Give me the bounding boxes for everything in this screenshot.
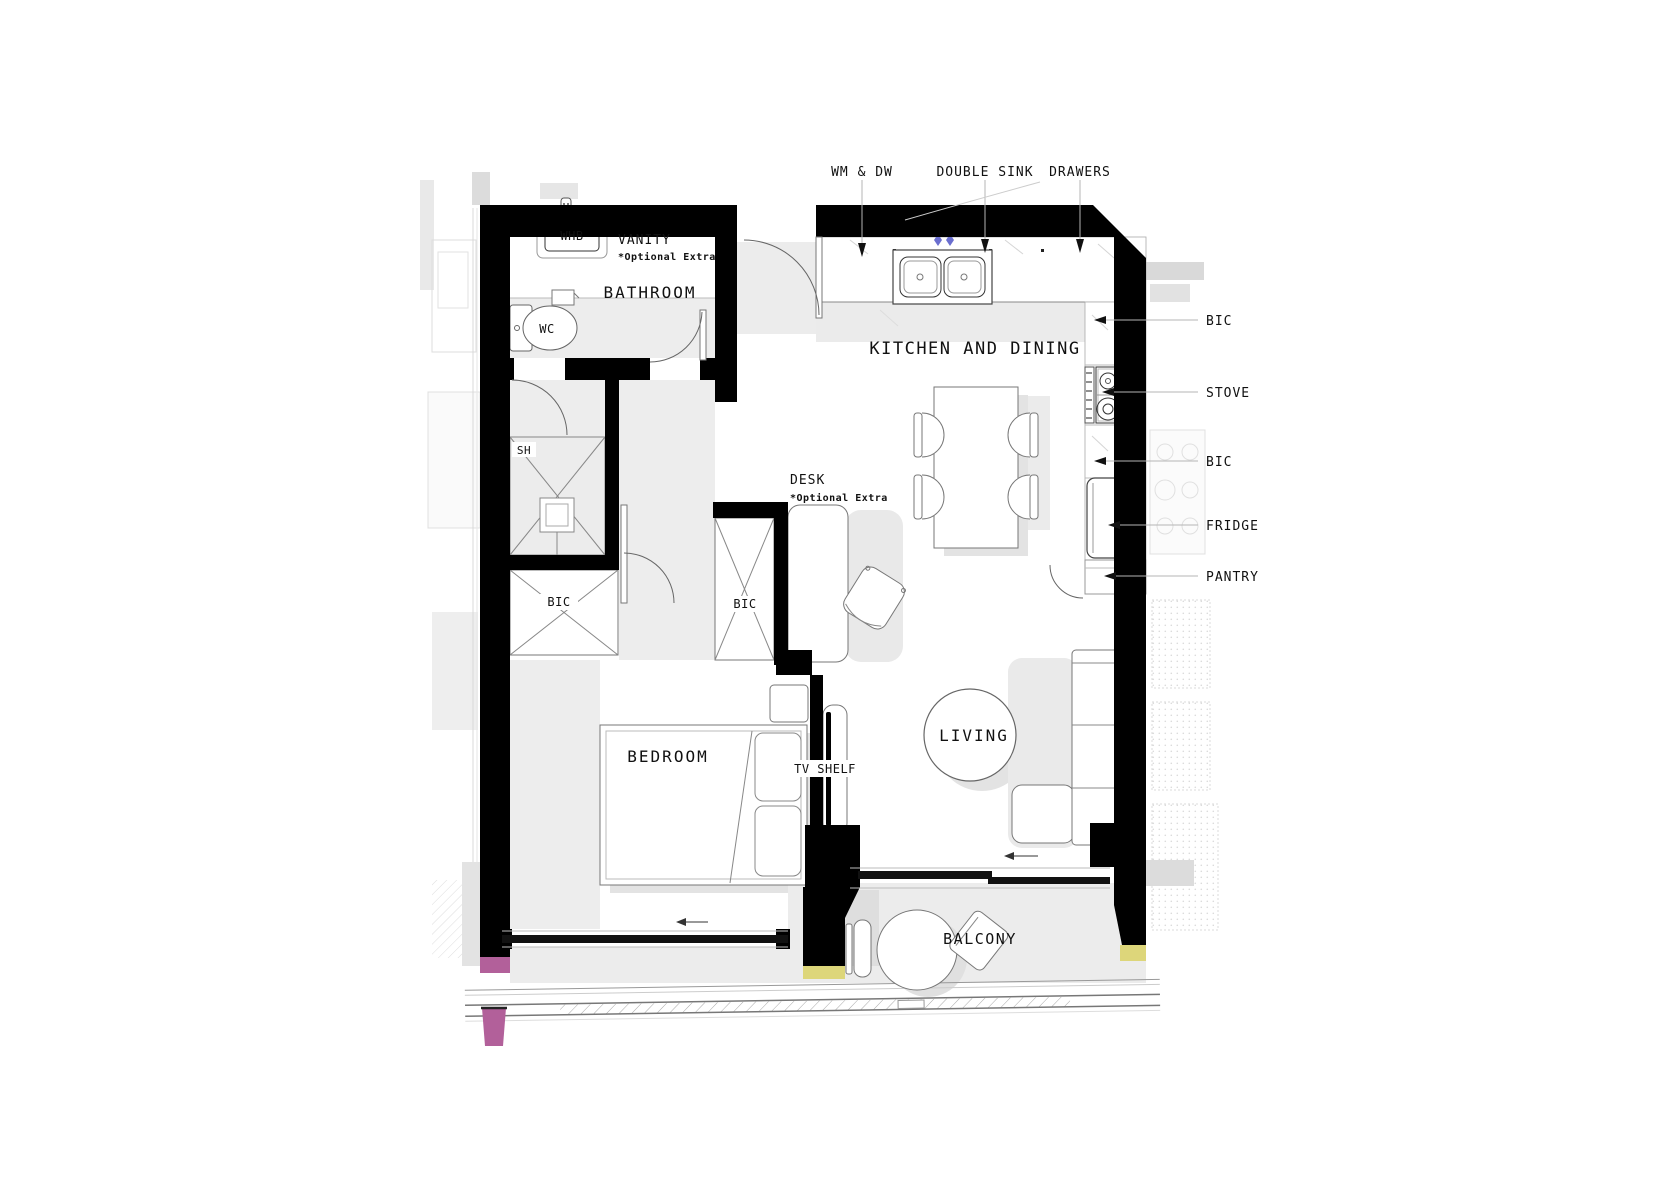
balcony-table xyxy=(877,910,957,990)
ghost-unit-right xyxy=(1152,702,1210,790)
wall-right-balcony-junction xyxy=(1090,823,1146,867)
ghost-unit-left xyxy=(428,392,480,528)
wall-wardrobe-right xyxy=(774,502,788,665)
wall-left xyxy=(480,205,510,957)
ghost-block xyxy=(540,183,578,199)
balcony-floor-left xyxy=(510,947,788,983)
fixture-whb: WHB xyxy=(560,229,583,243)
railing-column xyxy=(481,1008,507,1046)
fixture-bic-wardrobe: BIC xyxy=(733,597,756,611)
joint-dot xyxy=(1041,249,1044,252)
room-balcony: BALCONY xyxy=(943,930,1017,948)
callout-desk: DESK xyxy=(790,473,825,488)
callout-double-sink: DOUBLE SINK xyxy=(936,165,1033,180)
bic-wardrobe xyxy=(715,518,774,660)
wall-shadow xyxy=(462,862,480,966)
ghost-band-right xyxy=(1150,284,1190,302)
sofa-chaise xyxy=(1012,785,1074,843)
balcony-railing xyxy=(465,979,1160,1021)
chair-back xyxy=(914,413,922,457)
window-arrow xyxy=(676,918,708,926)
hall-floor-shade xyxy=(619,380,715,660)
pillow xyxy=(755,806,801,876)
wall-bathroom-bottom xyxy=(502,358,514,380)
wall-shower-right xyxy=(605,358,619,570)
room-bedroom: BEDROOM xyxy=(627,747,708,766)
desk xyxy=(788,505,848,662)
chair-back xyxy=(914,475,922,519)
counter-shade xyxy=(816,302,1085,342)
callout-stove: STOVE xyxy=(1206,386,1250,401)
wall-tv xyxy=(810,675,823,825)
fixture-wc: WC xyxy=(539,322,554,336)
ghost-unit-left xyxy=(438,252,468,308)
chair-seat xyxy=(854,920,871,977)
tap-dot xyxy=(567,203,569,205)
pink-column-cap-left xyxy=(480,957,510,973)
ghost-unit-left xyxy=(432,612,478,730)
sliding-door-panel xyxy=(988,877,1110,884)
stove-knobs xyxy=(1085,367,1094,423)
wall-top-bathroom xyxy=(480,205,737,237)
callout-drawers: DRAWERS xyxy=(1049,165,1111,180)
entry-floor-shade xyxy=(737,242,816,334)
toilet-roll-holder xyxy=(552,290,574,305)
callout-desk-note: *Optional Extra xyxy=(790,492,888,504)
fixture-tv-shelf: TV SHELF xyxy=(794,762,856,776)
callout-pantry: PANTRY xyxy=(1206,570,1259,585)
dining-table xyxy=(934,387,1018,548)
floor-plan-drawing: WM & DW DOUBLE SINK DRAWERS BIC STOVE BI… xyxy=(0,0,1680,1199)
tap-dot xyxy=(563,203,565,205)
callout-fridge: FRIDGE xyxy=(1206,519,1259,534)
callout-bic-top: BIC xyxy=(1206,314,1232,329)
yellow-column-cap-right xyxy=(1120,945,1146,961)
ghost-block xyxy=(472,172,490,205)
room-living: LIVING xyxy=(939,726,1009,745)
wall-mid-bottom xyxy=(805,825,860,887)
yellow-column-cap-mid xyxy=(803,966,845,979)
wall-under-shower xyxy=(490,555,619,570)
fixture-shower: SH xyxy=(517,444,531,457)
fixture-bic-closet: BIC xyxy=(547,595,570,609)
bedroom-floor-shade xyxy=(510,660,600,929)
bathroom-door-leaf xyxy=(700,310,706,360)
bedroom-door-leaf xyxy=(621,505,627,603)
wall-right xyxy=(1114,282,1146,823)
ghost-band-right xyxy=(1146,262,1204,280)
room-bathroom: BATHROOM xyxy=(603,283,696,302)
bic-closet xyxy=(510,570,618,655)
bedroom-window xyxy=(502,935,788,943)
ghost-unit-left xyxy=(432,240,476,352)
callout-vanity: VANITY xyxy=(618,233,671,248)
floor-plan-canvas: WM & DW DOUBLE SINK DRAWERS BIC STOVE BI… xyxy=(0,0,1680,1199)
shower-drain-inner xyxy=(546,504,568,526)
ghost-unit-right xyxy=(1152,600,1210,688)
wall-bathroom-bottom xyxy=(700,358,737,380)
callout-wm-dw: WM & DW xyxy=(831,165,893,180)
lobby-floor-shade xyxy=(510,380,605,437)
ghost-stove xyxy=(1150,430,1205,554)
chair-back xyxy=(846,924,852,974)
railing-post xyxy=(898,1000,924,1008)
chair-back xyxy=(1030,413,1038,457)
pantry-door-arc xyxy=(1050,565,1083,598)
callout-bic-mid: BIC xyxy=(1206,455,1232,470)
sliding-door-arrow xyxy=(1004,852,1038,860)
callout-vanity-note: *Optional Extra xyxy=(618,251,716,263)
room-kitchen-dining: KITCHEN AND DINING xyxy=(869,339,1080,359)
sliding-door-panel xyxy=(858,871,992,879)
wall-connector xyxy=(776,650,812,675)
chair-back xyxy=(1030,475,1038,519)
nightstand xyxy=(770,685,808,722)
arrow-head-left xyxy=(1004,852,1014,860)
balcony-chair-left xyxy=(846,920,871,977)
pink-column xyxy=(482,1008,506,1046)
railing-line xyxy=(465,984,1160,995)
arrow-head-left xyxy=(676,918,686,926)
ghost-band-right xyxy=(1146,860,1194,886)
